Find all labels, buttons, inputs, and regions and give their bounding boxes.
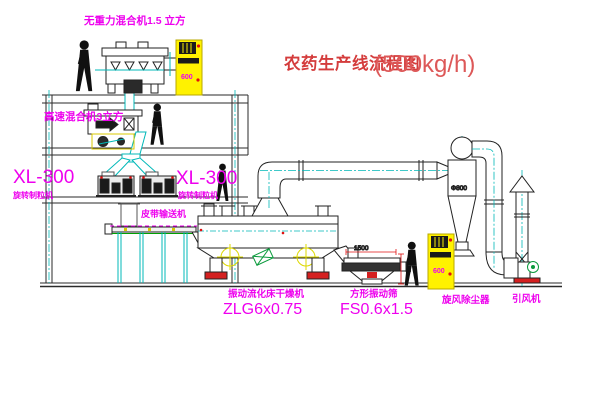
induced-draft-fan [504,258,540,283]
gravity-free-mixer [95,42,178,93]
belt-conveyor [105,224,197,283]
fluid-bed-dryer [192,198,356,279]
discharge-chute [118,203,140,226]
bucket-elevator-right: 600 [428,234,454,289]
drawing-canvas: 600 [0,0,600,403]
y-chute [102,154,158,177]
person-figure [76,40,92,91]
granulator-right [138,176,178,196]
label-cyclone: 旋风除尘器 [441,294,490,306]
dim-screen-width: 1500 [354,245,369,252]
dim-cyclone-dia: Φ800 [451,185,467,192]
label-granulator-left-name: 旋转制粒机 [12,190,53,200]
cyclone-outlet-pipe [472,141,506,275]
exhaust-duct [258,160,460,210]
elevator-right-mark: 600 [433,268,445,275]
label-granulator-left-model: XL-300 [13,167,74,188]
page-title-capacity: (500kg/h) [374,51,475,78]
label-screen-model: FS0.6x1.5 [340,301,413,318]
bucket-elevator-top: 600 [176,40,202,95]
granulator-left [96,176,136,196]
label-granulator-right-model: XL-300 [176,168,237,189]
label-granulator-right-name: 旋转制粒机 [177,190,218,200]
label-dryer-model: ZLG6x0.75 [223,301,302,318]
vibrating-screen: 1500 540 [342,245,411,284]
elevator-top-mark: 600 [181,74,193,81]
person-figure [151,104,164,145]
label-floor2-mixer: 高速混合机3立方 [44,110,124,123]
label-dryer-name: 振动流化床干燥机 [228,288,305,300]
label-belt-conveyor: 皮带输送机 [140,208,186,219]
label-top-mixer: 无重力混合机1.5 立方 [83,14,186,27]
label-screen-name: 方形振动筛 [350,288,398,300]
roof-chute [125,93,134,111]
label-fan: 引风机 [512,293,541,305]
cad-flow-diagram: 600 [0,0,600,403]
ground-line [40,283,562,287]
